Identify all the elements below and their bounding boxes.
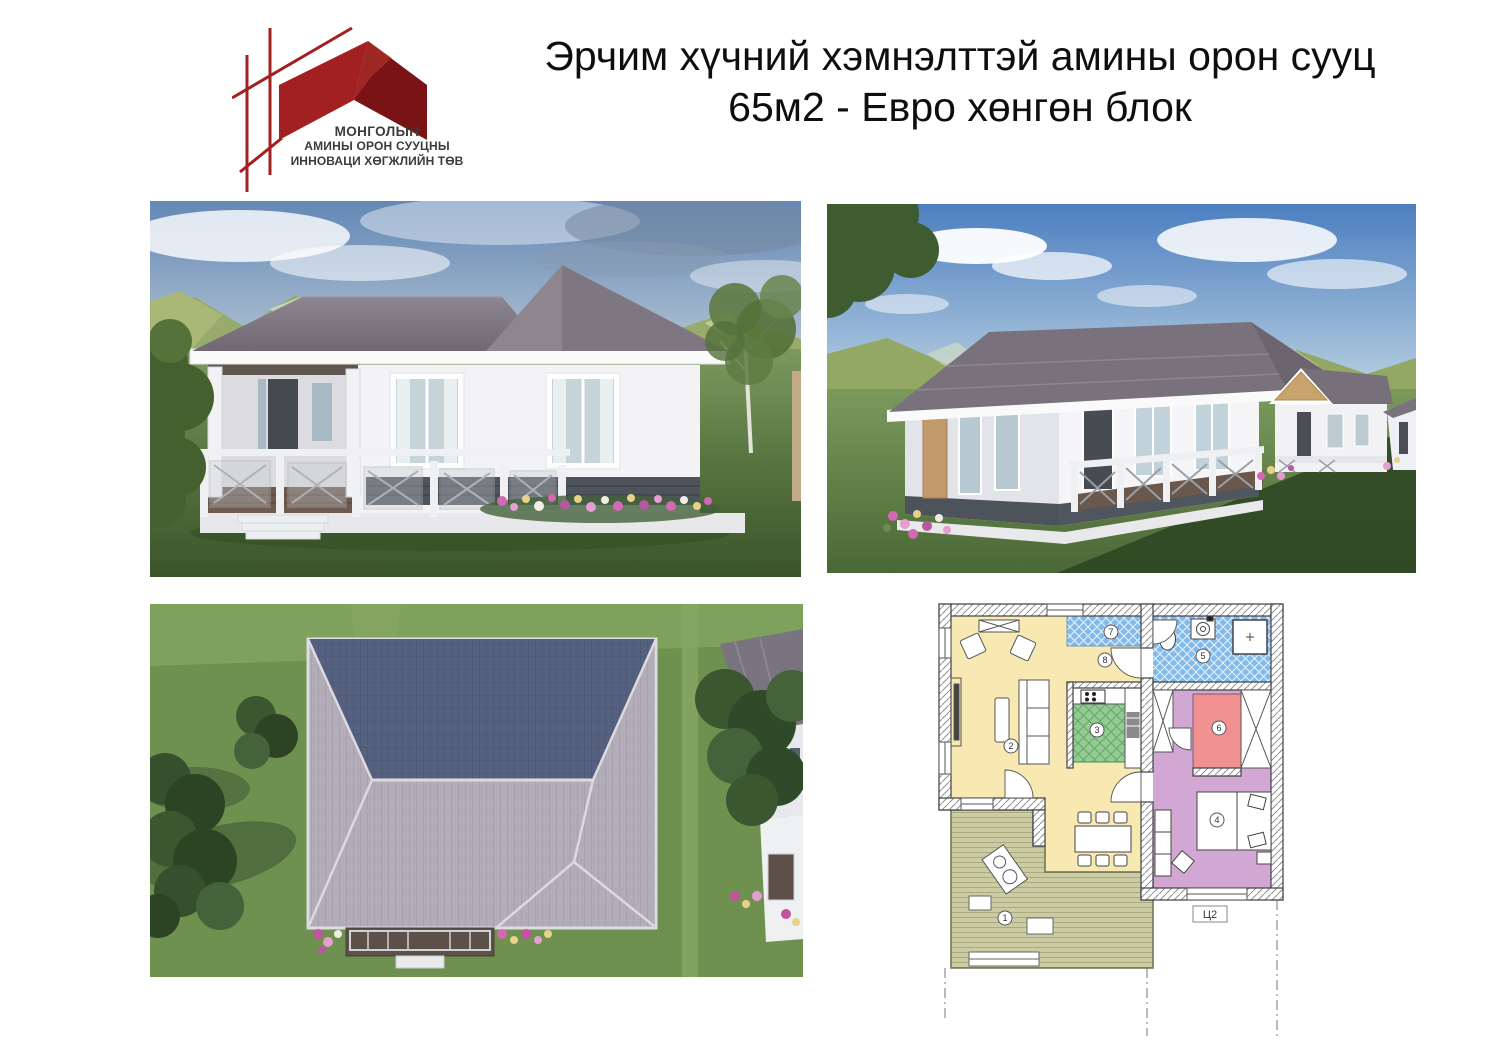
- logo-line-3: ИННОВАЦИ ХӨГЖЛИЙН ТӨВ: [272, 154, 482, 169]
- lawn-path: [682, 604, 698, 977]
- room-tag-wardrobe: 6: [1212, 721, 1226, 735]
- fridge-icon: [1127, 712, 1140, 738]
- terrace-table: [969, 896, 991, 910]
- stove-icon: [1081, 690, 1105, 703]
- terrace-table: [1027, 918, 1053, 934]
- room-tag-bathroom: 5: [1196, 649, 1210, 663]
- room-tag-terrace: 1: [998, 911, 1012, 925]
- fascia: [190, 349, 730, 364]
- axis-label-text: Ц2: [1203, 909, 1217, 921]
- svg-text:5: 5: [1200, 651, 1205, 661]
- room-tag-bedroom: 4: [1210, 813, 1224, 827]
- porch-ceiling: [208, 363, 360, 375]
- neighbor-sliver: [792, 371, 801, 501]
- hall-cabinet-icon: [1155, 810, 1171, 876]
- render-corner-view: [827, 204, 1416, 573]
- title-line-1: Эрчим хүчний хэмнэлттэй амины орон сууц: [440, 30, 1480, 82]
- render-aerial-view: [150, 604, 803, 977]
- room-tag-hall: 8: [1098, 653, 1112, 667]
- entry-door: [268, 379, 298, 453]
- steps: [396, 956, 444, 968]
- side-window: [995, 414, 1019, 490]
- porch-window: [312, 383, 332, 441]
- side-panel: [923, 418, 947, 498]
- title-line-2: 65м2 - Евро хөнгөн блок: [440, 82, 1480, 132]
- page-title: Эрчим хүчний хэмнэлттэй амины орон сууц …: [440, 30, 1480, 132]
- shower-icon: [1233, 620, 1267, 654]
- bed-icon: [1197, 792, 1271, 850]
- washer-icon: [1191, 616, 1215, 639]
- room-tag-entry: 7: [1104, 625, 1118, 639]
- floor-plan: Ц2 1 2 3 4 5 6 7 8: [935, 600, 1295, 1040]
- side-window: [959, 416, 981, 494]
- main-roof-aerial: [308, 639, 656, 928]
- dining-set: [1075, 812, 1131, 866]
- porch-steps: [238, 515, 328, 539]
- room-tag-kitchen: 3: [1090, 723, 1104, 737]
- nightstand-icon: [1257, 852, 1271, 864]
- svg-text:3: 3: [1094, 725, 1099, 735]
- svg-text:2: 2: [1008, 741, 1013, 751]
- axis-label: Ц2: [1193, 906, 1227, 922]
- room-tag-living: 2: [1004, 739, 1018, 753]
- svg-text:8: 8: [1102, 655, 1107, 665]
- console-icon: [979, 620, 1019, 632]
- neighbor-house-2: [1269, 368, 1393, 472]
- render-front-view: [150, 201, 801, 577]
- svg-text:4: 4: [1214, 815, 1219, 825]
- neighbor-door: [1297, 412, 1311, 458]
- svg-text:6: 6: [1216, 723, 1221, 733]
- svg-text:7: 7: [1108, 627, 1113, 637]
- logo-line-2: АМИНЫ ОРОН СУУЦНЫ: [272, 139, 482, 154]
- sofa-icon: [1019, 680, 1049, 764]
- coffee-table-icon: [995, 698, 1009, 742]
- walkway: [350, 604, 402, 642]
- svg-text:1: 1: [1002, 913, 1007, 923]
